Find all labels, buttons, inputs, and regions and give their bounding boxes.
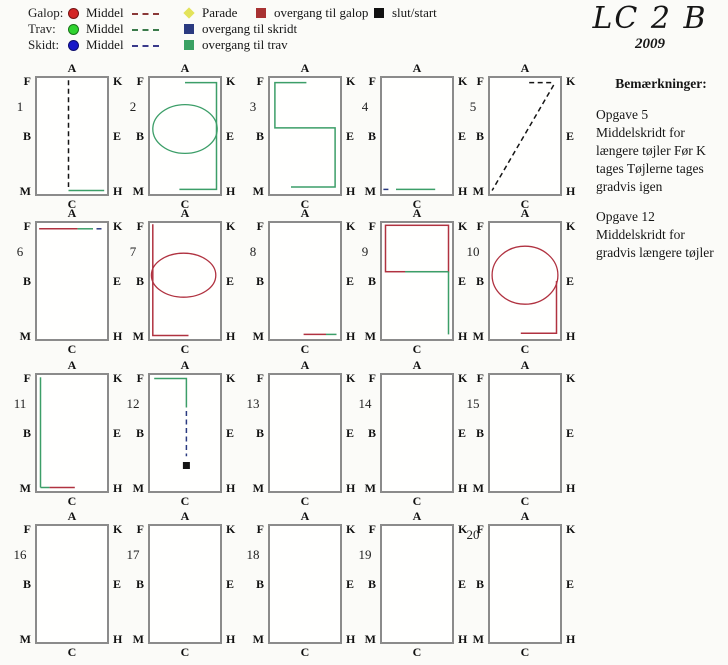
arena-letter-F: F bbox=[364, 372, 376, 384]
arena-letter-H: H bbox=[226, 482, 238, 494]
arena-letter-A: A bbox=[35, 359, 109, 371]
arena-letter-M: M bbox=[19, 633, 31, 645]
arena-letter-A: A bbox=[380, 207, 454, 219]
arena-letter-F: F bbox=[472, 220, 484, 232]
arena-path-overlay bbox=[490, 223, 560, 339]
title-year: 2009 bbox=[578, 36, 722, 53]
arena-number: 5 bbox=[462, 100, 484, 113]
arena-rect bbox=[268, 221, 342, 341]
arena-letter-K: K bbox=[566, 372, 578, 384]
arena-letter-K: K bbox=[226, 220, 238, 232]
path-segment bbox=[492, 246, 558, 304]
legend: Galop:MiddelTrav:MiddelSkidt:Middel Para… bbox=[0, 0, 580, 58]
legend-marker-item: overgang til skridt bbox=[184, 22, 297, 36]
arena-letter-M: M bbox=[472, 185, 484, 197]
arena-rect bbox=[380, 373, 454, 493]
arena-letter-M: M bbox=[364, 330, 376, 342]
arena-rect bbox=[268, 524, 342, 644]
legend-marker-item: Parade bbox=[184, 6, 237, 20]
arena-path-overlay bbox=[270, 526, 340, 642]
arena-letter-K: K bbox=[566, 75, 578, 87]
arena-letter-M: M bbox=[472, 330, 484, 342]
arena-letter-A: A bbox=[148, 359, 222, 371]
legend-marker-label: slut/start bbox=[392, 5, 437, 21]
arena-letter-F: F bbox=[364, 523, 376, 535]
arena-10: 10AFKBEMHC bbox=[460, 205, 582, 357]
arena-letter-E: E bbox=[566, 578, 578, 590]
overgang-til-galop-icon bbox=[256, 8, 266, 18]
legend-gait-label: Skidt: bbox=[28, 37, 68, 53]
arena-letter-F: F bbox=[252, 75, 264, 87]
arena-letter-M: M bbox=[132, 185, 144, 197]
arena-letter-K: K bbox=[566, 523, 578, 535]
middel-dash-sample-icon bbox=[132, 13, 159, 15]
arena-letter-H: H bbox=[566, 482, 578, 494]
arena-path-overlay bbox=[150, 223, 220, 339]
arena-letter-B: B bbox=[252, 427, 264, 439]
arena-path-overlay bbox=[150, 375, 220, 491]
arena-letter-M: M bbox=[252, 482, 264, 494]
arena-letter-A: A bbox=[268, 510, 342, 522]
arena-letter-A: A bbox=[488, 62, 562, 74]
arena-rect bbox=[35, 373, 109, 493]
arena-letter-A: A bbox=[488, 359, 562, 371]
arena-letter-A: A bbox=[380, 62, 454, 74]
arena-rect bbox=[268, 373, 342, 493]
arena-letter-A: A bbox=[268, 62, 342, 74]
arena-letter-E: E bbox=[566, 130, 578, 142]
arena-letter-A: A bbox=[35, 62, 109, 74]
arena-letter-H: H bbox=[226, 633, 238, 645]
arena-19: 19AFKBEMHC bbox=[352, 508, 474, 660]
arena-letter-M: M bbox=[19, 330, 31, 342]
arena-letter-B: B bbox=[364, 275, 376, 287]
arena-path-overlay bbox=[270, 223, 340, 339]
arena-letter-A: A bbox=[488, 207, 562, 219]
arena-18: 18AFKBEMHC bbox=[240, 508, 362, 660]
arena-letter-B: B bbox=[252, 130, 264, 142]
arena-letter-M: M bbox=[472, 482, 484, 494]
arena-rect bbox=[268, 76, 342, 196]
arena-letter-K: K bbox=[566, 220, 578, 232]
arena-letter-B: B bbox=[472, 130, 484, 142]
legend-gait-row: Trav:Middel bbox=[28, 22, 159, 36]
arena-letter-C: C bbox=[380, 646, 454, 658]
arena-letter-M: M bbox=[364, 633, 376, 645]
arena-letter-B: B bbox=[19, 130, 31, 142]
arena-letter-K: K bbox=[226, 523, 238, 535]
arena-letter-C: C bbox=[488, 343, 562, 355]
legend-marker-item: overgang til galop bbox=[256, 6, 368, 20]
arena-3: 3AFKBEMHC bbox=[240, 60, 362, 212]
arena-path-overlay bbox=[382, 375, 452, 491]
arena-number: 19 bbox=[354, 548, 376, 561]
arena-letter-A: A bbox=[35, 510, 109, 522]
arena-rect bbox=[488, 524, 562, 644]
arena-path-overlay bbox=[37, 223, 107, 339]
middel-dash-sample-icon bbox=[132, 45, 159, 47]
slut-start-marker-icon bbox=[183, 462, 190, 469]
arena-letter-H: H bbox=[566, 330, 578, 342]
arena-rect bbox=[380, 221, 454, 341]
arena-rect bbox=[380, 76, 454, 196]
slut-start-icon bbox=[374, 8, 384, 18]
arena-letter-C: C bbox=[268, 495, 342, 507]
arena-letter-E: E bbox=[226, 427, 238, 439]
arena-16: 16AFKBEMHC bbox=[7, 508, 129, 660]
arena-letter-F: F bbox=[132, 75, 144, 87]
arena-path-overlay bbox=[270, 78, 340, 194]
arena-letter-B: B bbox=[19, 578, 31, 590]
arena-letter-B: B bbox=[132, 275, 144, 287]
path-segment bbox=[521, 281, 557, 333]
arena-letter-M: M bbox=[364, 185, 376, 197]
arena-letter-M: M bbox=[132, 482, 144, 494]
arena-letter-E: E bbox=[226, 578, 238, 590]
arena-letter-A: A bbox=[380, 359, 454, 371]
path-segment bbox=[154, 379, 186, 408]
arena-letter-C: C bbox=[488, 495, 562, 507]
arena-letter-H: H bbox=[566, 185, 578, 197]
legend-middel-label: Middel bbox=[86, 21, 124, 37]
arena-path-overlay bbox=[382, 526, 452, 642]
arena-letter-C: C bbox=[148, 343, 222, 355]
arena-letter-A: A bbox=[35, 207, 109, 219]
path-segment bbox=[151, 253, 215, 297]
arena-letter-E: E bbox=[566, 275, 578, 287]
arena-number: 17 bbox=[122, 548, 144, 561]
arena-6: 6AFKBEMHC bbox=[7, 205, 129, 357]
arena-number: 18 bbox=[242, 548, 264, 561]
arena-letter-F: F bbox=[19, 523, 31, 535]
arena-number: 14 bbox=[354, 397, 376, 410]
arena-letter-C: C bbox=[148, 495, 222, 507]
arena-letter-M: M bbox=[19, 185, 31, 197]
page-title: LC 2 B bbox=[578, 2, 722, 36]
arena-letter-M: M bbox=[472, 633, 484, 645]
arena-letter-F: F bbox=[252, 372, 264, 384]
gait-color-dot-icon bbox=[68, 40, 79, 51]
arena-letter-M: M bbox=[252, 330, 264, 342]
legend-marker-label: overgang til trav bbox=[202, 37, 288, 53]
arena-rect bbox=[35, 221, 109, 341]
path-segment bbox=[492, 85, 554, 191]
arena-letter-B: B bbox=[364, 427, 376, 439]
arena-8: 8AFKBEMHC bbox=[240, 205, 362, 357]
arena-letter-C: C bbox=[488, 646, 562, 658]
arena-letter-C: C bbox=[268, 343, 342, 355]
arena-5: 5AFKBEMHC bbox=[460, 60, 582, 212]
arena-number: 7 bbox=[122, 245, 144, 258]
legend-marker-label: overgang til galop bbox=[274, 5, 368, 21]
arena-letter-F: F bbox=[19, 75, 31, 87]
arena-letter-H: H bbox=[226, 185, 238, 197]
arena-letter-A: A bbox=[148, 62, 222, 74]
arena-number: 12 bbox=[122, 397, 144, 410]
title-block: LC 2 B 2009 bbox=[578, 2, 722, 53]
legend-marker-item: overgang til trav bbox=[184, 38, 288, 52]
arena-letter-F: F bbox=[364, 75, 376, 87]
overgang-til-trav-icon bbox=[184, 40, 194, 50]
arena-14: 14AFKBEMHC bbox=[352, 357, 474, 509]
arena-12: 12AFKBEMHC bbox=[120, 357, 242, 509]
legend-marker-label: overgang til skridt bbox=[202, 21, 297, 37]
arena-15: 15AFKBEMHC bbox=[460, 357, 582, 509]
arena-rect bbox=[488, 76, 562, 196]
arena-number: 4 bbox=[354, 100, 376, 113]
arena-2: 2AFKBEMHC bbox=[120, 60, 242, 212]
path-segment bbox=[386, 225, 449, 271]
arena-rect bbox=[380, 524, 454, 644]
arena-letter-B: B bbox=[252, 578, 264, 590]
arena-letter-A: A bbox=[148, 207, 222, 219]
arena-path-overlay bbox=[382, 223, 452, 339]
arena-letter-B: B bbox=[19, 275, 31, 287]
arena-number: 9 bbox=[354, 245, 376, 258]
arena-path-overlay bbox=[382, 78, 452, 194]
path-segment bbox=[153, 105, 217, 154]
arena-letter-B: B bbox=[472, 427, 484, 439]
arena-letter-B: B bbox=[472, 275, 484, 287]
arena-letter-K: K bbox=[226, 75, 238, 87]
legend-middel-label: Middel bbox=[86, 5, 124, 21]
arena-letter-B: B bbox=[472, 578, 484, 590]
arena-number: 10 bbox=[462, 245, 484, 258]
arena-letter-F: F bbox=[472, 523, 484, 535]
arena-letter-A: A bbox=[268, 207, 342, 219]
arena-20: 20AFKBEMHC bbox=[460, 508, 582, 660]
arena-number: 8 bbox=[242, 245, 264, 258]
gait-color-dot-icon bbox=[68, 8, 79, 19]
arena-number: 6 bbox=[9, 245, 31, 258]
arena-letter-B: B bbox=[364, 578, 376, 590]
arena-number: 3 bbox=[242, 100, 264, 113]
arena-rect bbox=[148, 76, 222, 196]
arena-path-overlay bbox=[490, 526, 560, 642]
arena-letter-B: B bbox=[132, 578, 144, 590]
arena-letter-A: A bbox=[488, 510, 562, 522]
legend-gait-label: Galop: bbox=[28, 5, 68, 21]
dressage-test-sheet: { "colors": { "green": "#3c9e68", "red":… bbox=[0, 0, 728, 665]
legend-middel-label: Middel bbox=[86, 37, 124, 53]
arena-rect bbox=[148, 221, 222, 341]
arena-letter-B: B bbox=[132, 130, 144, 142]
arena-rect bbox=[488, 373, 562, 493]
arena-letter-F: F bbox=[132, 220, 144, 232]
arena-rect bbox=[35, 76, 109, 196]
arena-9: 9AFKBEMHC bbox=[352, 205, 474, 357]
arena-rect bbox=[488, 221, 562, 341]
arena-rect bbox=[148, 524, 222, 644]
arena-path-overlay bbox=[150, 78, 220, 194]
arena-4: 4AFKBEMHC bbox=[352, 60, 474, 212]
arena-13: 13AFKBEMHC bbox=[240, 357, 362, 509]
arena-letter-F: F bbox=[252, 220, 264, 232]
arena-letter-B: B bbox=[19, 427, 31, 439]
arena-number: 13 bbox=[242, 397, 264, 410]
arena-number: 1 bbox=[9, 100, 31, 113]
arena-letter-M: M bbox=[252, 185, 264, 197]
gait-color-dot-icon bbox=[68, 24, 79, 35]
arena-letter-B: B bbox=[364, 130, 376, 142]
arena-path-overlay bbox=[270, 375, 340, 491]
arena-letter-E: E bbox=[226, 275, 238, 287]
middel-dash-sample-icon bbox=[132, 29, 159, 31]
arena-letter-K: K bbox=[226, 372, 238, 384]
arena-letter-E: E bbox=[566, 427, 578, 439]
arena-letter-F: F bbox=[19, 372, 31, 384]
arena-path-overlay bbox=[150, 526, 220, 642]
arena-grid: 1AFKBEMHC2AFKBEMHC3AFKBEMHC4AFKBEMHC5AFK… bbox=[0, 58, 728, 665]
legend-gait-label: Trav: bbox=[28, 21, 68, 37]
legend-gait-row: Galop:Middel bbox=[28, 6, 159, 20]
path-segment bbox=[179, 83, 216, 190]
path-segment bbox=[153, 224, 189, 335]
arena-path-overlay bbox=[490, 375, 560, 491]
arena-letter-C: C bbox=[380, 343, 454, 355]
arena-path-overlay bbox=[37, 375, 107, 491]
arena-letter-C: C bbox=[148, 646, 222, 658]
arena-1: 1AFKBEMHC bbox=[7, 60, 129, 212]
arena-path-overlay bbox=[37, 78, 107, 194]
arena-path-overlay bbox=[37, 526, 107, 642]
arena-letter-M: M bbox=[19, 482, 31, 494]
arena-letter-F: F bbox=[132, 372, 144, 384]
arena-letter-A: A bbox=[148, 510, 222, 522]
arena-letter-F: F bbox=[19, 220, 31, 232]
arena-number: 2 bbox=[122, 100, 144, 113]
arena-letter-B: B bbox=[132, 427, 144, 439]
arena-letter-A: A bbox=[380, 510, 454, 522]
arena-rect bbox=[148, 373, 222, 493]
arena-letter-H: H bbox=[226, 330, 238, 342]
arena-letter-M: M bbox=[252, 633, 264, 645]
legend-marker-item: slut/start bbox=[374, 6, 437, 20]
arena-letter-C: C bbox=[35, 495, 109, 507]
arena-rect bbox=[35, 524, 109, 644]
arena-letter-C: C bbox=[35, 646, 109, 658]
arena-letter-C: C bbox=[380, 495, 454, 507]
arena-letter-F: F bbox=[132, 523, 144, 535]
path-segment bbox=[275, 83, 335, 187]
arena-11: 11AFKBEMHC bbox=[7, 357, 129, 509]
arena-letter-F: F bbox=[472, 75, 484, 87]
arena-letter-A: A bbox=[268, 359, 342, 371]
arena-number: 15 bbox=[462, 397, 484, 410]
legend-marker-label: Parade bbox=[202, 5, 237, 21]
overgang-til-skridt-icon bbox=[184, 24, 194, 34]
arena-letter-C: C bbox=[268, 646, 342, 658]
arena-17: 17AFKBEMHC bbox=[120, 508, 242, 660]
arena-letter-H: H bbox=[566, 633, 578, 645]
arena-letter-F: F bbox=[472, 372, 484, 384]
arena-number: 16 bbox=[9, 548, 31, 561]
arena-letter-M: M bbox=[132, 633, 144, 645]
arena-letter-E: E bbox=[226, 130, 238, 142]
arena-letter-C: C bbox=[35, 343, 109, 355]
arena-path-overlay bbox=[490, 78, 560, 194]
legend-gait-row: Skidt:Middel bbox=[28, 38, 159, 52]
arena-7: 7AFKBEMHC bbox=[120, 205, 242, 357]
parade-diamond-icon bbox=[183, 7, 194, 18]
arena-letter-M: M bbox=[364, 482, 376, 494]
arena-letter-F: F bbox=[252, 523, 264, 535]
arena-letter-F: F bbox=[364, 220, 376, 232]
arena-letter-M: M bbox=[132, 330, 144, 342]
arena-letter-B: B bbox=[252, 275, 264, 287]
arena-number: 11 bbox=[9, 397, 31, 410]
